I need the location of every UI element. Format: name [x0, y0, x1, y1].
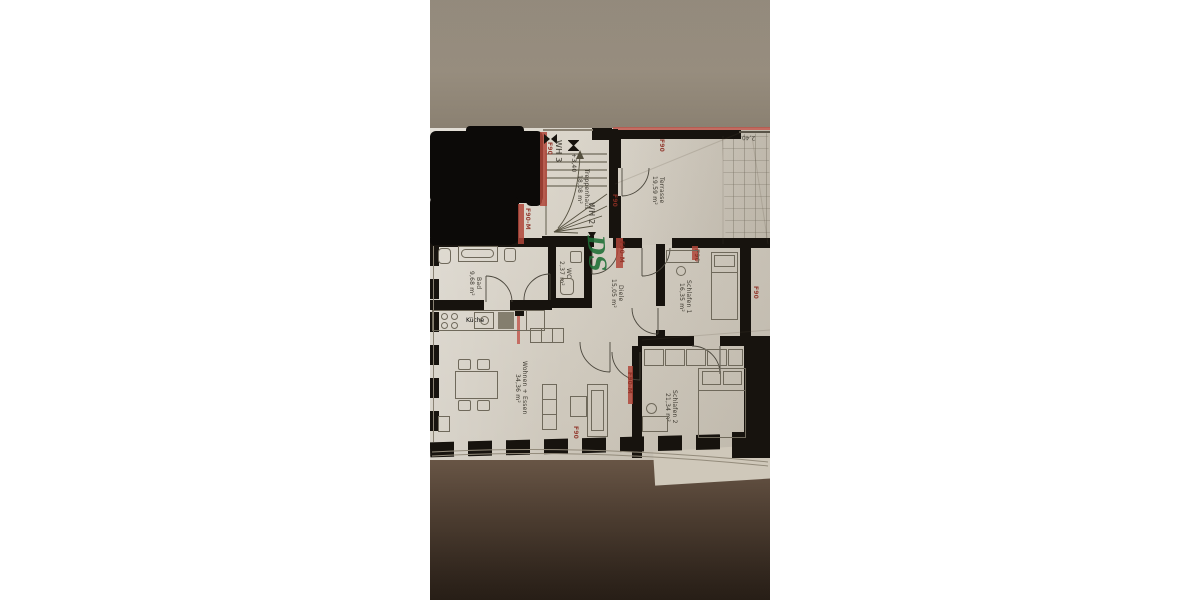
floorplan-photo: F90 F90-M F90 F90-M F90 F90 F90 F90-M F9… [430, 0, 770, 600]
counter-divider [526, 311, 527, 330]
handwritten-initials: DS [582, 234, 611, 272]
kitchen-sink-basin [480, 316, 489, 325]
wardrobe-unit [665, 349, 685, 366]
fire-rating-label: F90-M [618, 241, 624, 263]
room-area: 34,36 m² [514, 374, 521, 403]
room-label-terrasse: 19,59 m² Terrasse [651, 163, 665, 218]
wardrobe-unit [728, 349, 743, 366]
desk [666, 250, 699, 263]
fire-rating-label: F90-M [524, 208, 530, 230]
room-label-bad: 9,68 m² Bad [468, 262, 482, 304]
fire-rating-label: F90 [752, 286, 758, 299]
room-area: 9,68 m² [468, 271, 475, 296]
bed-pillow [702, 371, 721, 385]
room-area: 15,05 m² [610, 279, 617, 308]
bed-line [712, 272, 737, 273]
sofa-cushion-line [541, 329, 542, 342]
room-name: Wohnen + Essen [521, 361, 528, 415]
tv-sideboard-inner [591, 390, 604, 431]
dining-chair [458, 359, 471, 370]
sofa [542, 384, 557, 430]
stove-burner [451, 322, 458, 329]
fire-rating-label: F90 [611, 194, 617, 207]
redaction-blob [430, 236, 514, 245]
chair [676, 266, 686, 276]
room-name: Diele [617, 285, 624, 301]
room-name: Bad [475, 277, 482, 289]
redaction-blob [466, 126, 524, 136]
toilet [438, 248, 451, 264]
stove-burner [451, 313, 458, 320]
level-marker-icon [568, 140, 579, 151]
dining-table [455, 371, 498, 399]
stove-burner [441, 322, 448, 329]
dimension-text: 2,40 [742, 134, 756, 141]
unit-label-wh3: WH 3 [554, 140, 563, 162]
kitchen-appliance [498, 312, 514, 329]
coffee-table [570, 396, 587, 417]
room-label-diele: 15,05 m² Diele [610, 266, 624, 321]
bed-pillow [714, 255, 735, 267]
room-name: Schlafen 1 [685, 280, 692, 314]
sofa [530, 328, 564, 343]
sink [504, 248, 516, 262]
fire-rating-label: F90-M [626, 372, 632, 394]
bed-pillow [723, 371, 742, 385]
unit-label-wh2: WH 2 [587, 202, 596, 224]
page: { "photo": { "plan": { "units": { "wh2_l… [0, 0, 1200, 600]
dining-chair [477, 359, 490, 370]
bed-line [699, 390, 745, 391]
toilet [560, 278, 574, 295]
bathtub-inner [461, 249, 494, 258]
sofa-cushion-line [543, 399, 556, 400]
room-label-schlafen1: 16,35 m² Schlafen 1 [678, 268, 692, 326]
room-name: Terrasse [658, 177, 665, 203]
room-area: 18,08 m² [576, 175, 583, 204]
plant-stand [438, 416, 450, 432]
wardrobe-unit [686, 349, 706, 366]
wardrobe-unit [644, 349, 664, 366]
chair [646, 403, 657, 414]
fire-rating-label: F90 [572, 426, 578, 439]
sofa-cushion-line [543, 414, 556, 415]
fire-rating-label: F90 [658, 139, 664, 152]
room-area: 19,59 m² [651, 176, 658, 205]
desk [642, 416, 668, 432]
dining-chair [458, 400, 471, 411]
sofa-cushion-line [552, 329, 553, 342]
sink [570, 251, 582, 263]
room-label-wohnen-essen: 34,36 m² Wohnen + Essen [514, 352, 528, 424]
room-name: Schlafen 2 [671, 390, 678, 424]
stove-burner [441, 313, 448, 320]
dining-chair [477, 400, 490, 411]
wardrobe-unit [707, 349, 727, 366]
room-area: 16,35 m² [678, 283, 685, 312]
room-name: WC [565, 268, 572, 279]
